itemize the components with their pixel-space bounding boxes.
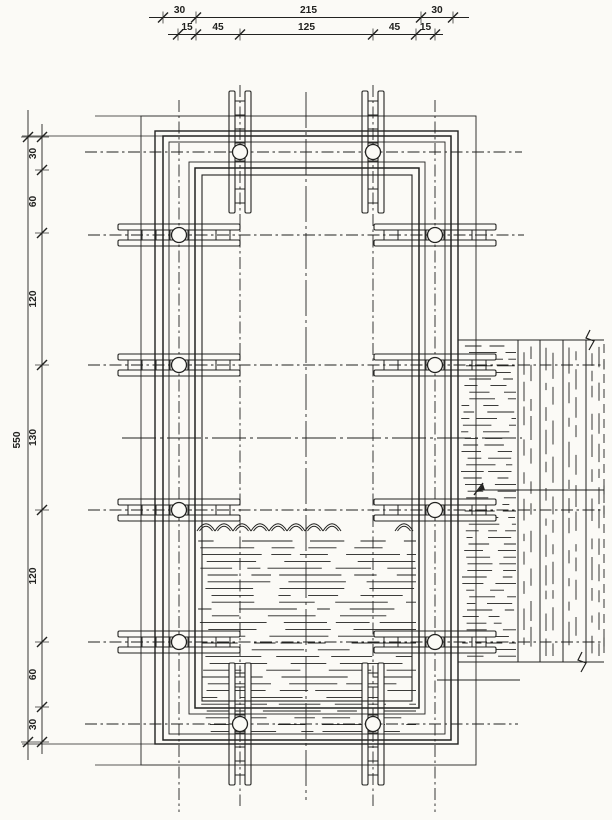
dim-label: 30 (174, 5, 186, 16)
dim-label: 120 (28, 567, 39, 584)
pit-and-formwork-walls (141, 116, 476, 765)
drawing-sheet: 30215301545125451555030601201301206030 (0, 0, 612, 820)
dim-label: 125 (298, 22, 315, 33)
dim-label: 60 (28, 669, 39, 681)
dim-label: 30 (28, 719, 39, 731)
dim-label: 15 (181, 22, 193, 33)
scalloped-fill-edge (197, 524, 413, 531)
dim-label: 120 (28, 290, 39, 307)
dim-label: 215 (300, 5, 317, 16)
dim-label: 15 (420, 22, 432, 33)
dim-label: 60 (28, 196, 39, 208)
formwork-plan-drawing: 30215301545125451555030601201301206030 (0, 0, 612, 820)
dim-label: 30 (431, 5, 443, 16)
dim-label: 550 (12, 431, 23, 448)
dim-label: 45 (389, 22, 401, 33)
dim-label: 45 (212, 22, 224, 33)
dim-label: 130 (28, 429, 39, 446)
plank-hatch-vertical (524, 347, 599, 657)
dim-label: 30 (28, 148, 39, 160)
